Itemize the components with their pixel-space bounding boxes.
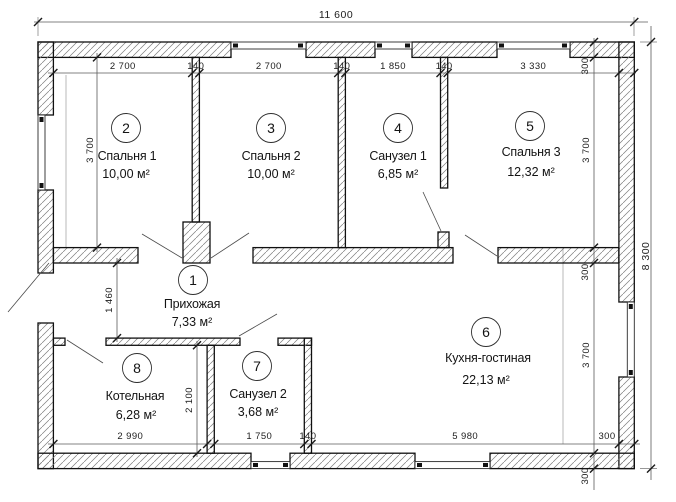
dim-label: 300 bbox=[580, 263, 591, 280]
window-tick bbox=[298, 44, 303, 48]
room-name: Прихожая bbox=[164, 297, 220, 311]
dimension-labels: 11 600 8 300 2 700 140 2 700 140 1 850 1… bbox=[85, 9, 652, 485]
wall-segment bbox=[53, 248, 138, 263]
room-name: Санузел 2 bbox=[229, 387, 287, 401]
room-number: 8 bbox=[133, 360, 141, 376]
dim-label: 1 460 bbox=[104, 287, 115, 313]
floor-plan: 11 600 8 300 2 700 140 2 700 140 1 850 1… bbox=[0, 0, 676, 502]
partition-bedroom2-bathroom1 bbox=[338, 57, 345, 247]
room-area: 10,00 м² bbox=[102, 167, 150, 181]
room-label-bedroom3: 5 Спальня 3 12,32 м² bbox=[502, 112, 561, 180]
room-name: Спальня 3 bbox=[502, 145, 561, 159]
room-area: 7,33 м² bbox=[172, 315, 213, 329]
room-label-bathroom2: 7 Санузел 2 3,68 м² bbox=[229, 352, 287, 420]
window bbox=[627, 302, 634, 377]
window-tick bbox=[40, 117, 44, 122]
bathroom1-door-leader bbox=[423, 192, 441, 231]
dim-label: 300 bbox=[598, 431, 615, 442]
room-area: 12,32 м² bbox=[507, 165, 555, 179]
room-name: Санузел 1 bbox=[369, 149, 427, 163]
entrance-door-leader bbox=[8, 263, 49, 312]
wall-return-stub bbox=[53, 338, 65, 345]
bedroom2-door-leader bbox=[211, 233, 249, 258]
room-number: 6 bbox=[482, 324, 490, 340]
window-tick bbox=[499, 44, 504, 48]
room-label-hallway: 1 Прихожая 7,33 м² bbox=[164, 266, 220, 330]
window-tick bbox=[629, 370, 633, 375]
dim-label: 140 bbox=[333, 61, 350, 72]
room-name: Спальня 1 bbox=[98, 149, 157, 163]
room-number: 4 bbox=[394, 120, 402, 136]
window-tick bbox=[233, 44, 238, 48]
dim-label: 300 bbox=[580, 467, 591, 484]
window-tick bbox=[283, 463, 288, 467]
bedroom3-door-leader bbox=[465, 235, 497, 256]
room-number: 3 bbox=[267, 120, 275, 136]
dim-label: 2 100 bbox=[184, 387, 195, 413]
room-name: Кухня-гостиная bbox=[445, 351, 531, 365]
room-area: 6,85 м² bbox=[378, 167, 419, 181]
boiler-door-leader bbox=[67, 340, 103, 363]
room-area: 3,68 м² bbox=[238, 405, 279, 419]
room-number: 2 bbox=[122, 120, 130, 136]
window bbox=[415, 462, 490, 469]
dim-label: 1 850 bbox=[380, 61, 406, 72]
overall-height-label: 8 300 bbox=[640, 242, 652, 271]
wall-segment bbox=[38, 190, 53, 273]
overall-width-label: 11 600 bbox=[319, 9, 353, 21]
room-label-bedroom1: 2 Спальня 1 10,00 м² bbox=[98, 114, 157, 182]
door-leaders bbox=[8, 192, 497, 363]
wall-segment bbox=[306, 42, 375, 57]
wall-segment bbox=[253, 248, 453, 263]
wall-segment bbox=[619, 42, 634, 302]
room-area: 22,13 м² bbox=[462, 373, 510, 387]
wall-segment bbox=[490, 453, 634, 468]
window bbox=[497, 42, 570, 49]
dim-label: 140 bbox=[187, 61, 204, 72]
room-area: 10,00 м² bbox=[247, 167, 295, 181]
window-tick bbox=[562, 44, 567, 48]
wall-segment bbox=[498, 248, 619, 263]
dim-label: 2 990 bbox=[117, 431, 143, 442]
partition-bedroom1-bedroom2 bbox=[192, 57, 199, 222]
window-tick bbox=[483, 463, 488, 467]
dim-label: 1 750 bbox=[246, 431, 272, 442]
room-number: 1 bbox=[189, 272, 197, 288]
bedroom1-door-leader bbox=[142, 234, 182, 258]
window-tick bbox=[40, 183, 44, 188]
dim-label: 300 bbox=[580, 57, 591, 74]
window-tick bbox=[405, 44, 410, 48]
window-tick bbox=[377, 44, 382, 48]
dim-label: 140 bbox=[299, 431, 316, 442]
window-tick bbox=[629, 304, 633, 309]
room-label-kitchen-living: 6 Кухня-гостиная 22,13 м² bbox=[445, 318, 531, 388]
room-number: 7 bbox=[253, 358, 261, 374]
wall-segment bbox=[290, 453, 415, 468]
wall-segment bbox=[38, 42, 53, 115]
room-label-boiler: 8 Котельная 6,28 м² bbox=[106, 354, 165, 423]
wall-segment bbox=[106, 338, 240, 345]
room-area: 6,28 м² bbox=[116, 408, 157, 422]
wall-segment bbox=[38, 453, 251, 468]
window-tick bbox=[253, 463, 258, 467]
dim-label: 3 330 bbox=[520, 61, 546, 72]
dim-label: 3 700 bbox=[581, 137, 592, 163]
room-labels: 1 Прихожая 7,33 м² 2 Спальня 1 10,00 м² … bbox=[98, 112, 561, 423]
room-label-bathroom1: 4 Санузел 1 6,85 м² bbox=[369, 114, 427, 182]
dim-label: 2 700 bbox=[110, 61, 136, 72]
door-jamb-stub bbox=[438, 232, 449, 248]
floor-plan-drawing: 11 600 8 300 2 700 140 2 700 140 1 850 1… bbox=[0, 0, 676, 502]
window bbox=[231, 42, 306, 49]
wall-segment bbox=[412, 42, 497, 57]
dim-label: 3 700 bbox=[581, 342, 592, 368]
dim-label: 3 700 bbox=[85, 137, 96, 163]
room-name: Котельная bbox=[106, 389, 165, 403]
window-tick bbox=[417, 463, 422, 467]
dim-label: 2 700 bbox=[256, 61, 282, 72]
room-number: 5 bbox=[526, 118, 534, 134]
room-name: Спальня 2 bbox=[242, 149, 301, 163]
window bbox=[38, 115, 45, 190]
wall-pier bbox=[183, 222, 210, 263]
bathroom2-door-leader bbox=[239, 314, 277, 336]
dim-label: 5 980 bbox=[452, 431, 478, 442]
room-label-bedroom2: 3 Спальня 2 10,00 м² bbox=[242, 114, 301, 182]
wall-segment bbox=[38, 42, 231, 57]
partition-boiler-bathroom2 bbox=[207, 345, 214, 453]
dim-label: 140 bbox=[436, 61, 453, 72]
